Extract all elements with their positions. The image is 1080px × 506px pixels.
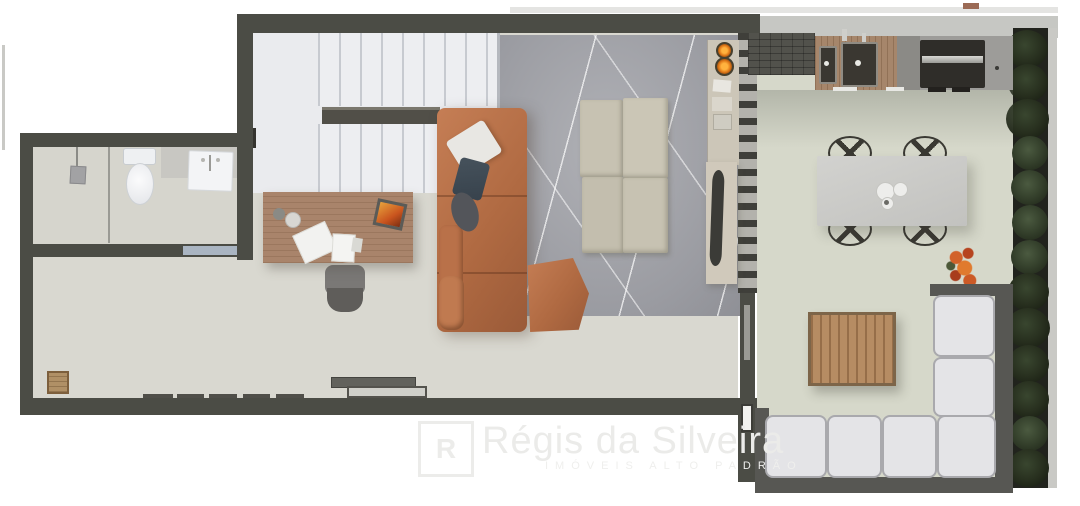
sink-drain — [824, 61, 829, 66]
stair-handrail — [322, 107, 440, 124]
left-wall — [20, 133, 33, 415]
counter-handle — [886, 87, 904, 91]
hedge-bush — [1009, 381, 1049, 418]
grill-handle — [952, 87, 970, 92]
bathroom-right-wall — [237, 14, 253, 260]
hedge-bush — [1012, 136, 1048, 170]
notepad — [351, 237, 363, 252]
neighbor-wall-line — [2, 45, 5, 150]
hedge-bush — [1008, 449, 1049, 487]
outdoor-cushion — [882, 415, 937, 478]
floor-vent — [177, 394, 204, 398]
divider-glass-door — [744, 305, 750, 360]
cutting-board — [713, 79, 732, 93]
faucet — [842, 29, 847, 41]
counter-shadow — [757, 90, 1013, 148]
brand-logo: R — [418, 421, 474, 477]
grill — [920, 40, 985, 88]
roof-mark — [963, 3, 979, 9]
counter-handle — [833, 87, 857, 91]
hedge-bush — [1011, 170, 1048, 205]
hedge-bush — [1008, 273, 1049, 311]
grill-handle — [928, 87, 946, 92]
brand-name: Régis da Silveira — [482, 420, 784, 463]
floor-plan: R Régis da Silveira IMÓVEIS ALTO PADRÃO — [0, 0, 1080, 506]
stair-lower-flight — [318, 124, 438, 193]
counter-section — [897, 36, 920, 90]
burner — [715, 57, 734, 76]
floor-vent — [209, 394, 237, 398]
outdoor-cushion — [933, 357, 995, 417]
outdoor-cushion — [827, 415, 882, 478]
grill-bar — [922, 56, 983, 63]
bathroom-top-wall — [20, 133, 253, 147]
shower-divider — [108, 147, 110, 243]
bottom-wall — [20, 398, 757, 415]
office-chair-back — [327, 288, 363, 312]
hedge-bush — [1008, 345, 1049, 383]
outdoor-sofa-frame-right — [995, 284, 1013, 490]
sliding-door-panel — [347, 386, 427, 398]
outdoor-cushion — [933, 295, 995, 357]
floor-cushion — [580, 100, 623, 177]
faucet — [862, 33, 866, 42]
hedge-bush — [1012, 205, 1048, 240]
floor-cushion — [623, 178, 668, 253]
sink-drain — [855, 60, 861, 66]
stone-counter — [748, 33, 815, 75]
watermark: R Régis da Silveira IMÓVEIS ALTO PADRÃO — [412, 416, 832, 478]
kitchen-item — [712, 97, 732, 111]
hedge-bush — [1011, 416, 1048, 451]
floor-cushion — [582, 177, 624, 253]
plate — [893, 182, 908, 197]
floor-vent — [143, 394, 173, 398]
top-wall — [237, 14, 760, 33]
wood-stool — [47, 371, 69, 394]
outdoor-sofa-frame-bottom — [755, 477, 1013, 493]
bowl-center — [884, 200, 889, 205]
sofa-end-pillow — [439, 276, 464, 330]
sink-faucet — [209, 155, 211, 171]
flower-pot — [946, 247, 980, 289]
sink-knob — [201, 158, 205, 162]
planter-edge — [1048, 28, 1057, 488]
hedge-bush — [1008, 64, 1048, 102]
floor-cushion — [623, 98, 668, 178]
desk-plate — [285, 212, 301, 228]
shower-head — [70, 166, 87, 185]
floor-vent — [243, 394, 270, 398]
floor-vent — [276, 394, 304, 398]
toilet-bowl — [126, 163, 154, 205]
coffee-table — [808, 312, 896, 386]
outdoor-cushion-corner — [937, 415, 996, 478]
desk-cup — [273, 208, 285, 220]
hedge-bush — [1011, 240, 1048, 274]
appliance-dot — [995, 66, 999, 70]
stair-upper-flight — [318, 33, 497, 106]
sink-knob — [216, 158, 220, 162]
kitchen-item — [713, 114, 732, 130]
bathroom-glass-door — [183, 246, 237, 255]
brand-tagline: IMÓVEIS ALTO PADRÃO — [545, 460, 803, 472]
